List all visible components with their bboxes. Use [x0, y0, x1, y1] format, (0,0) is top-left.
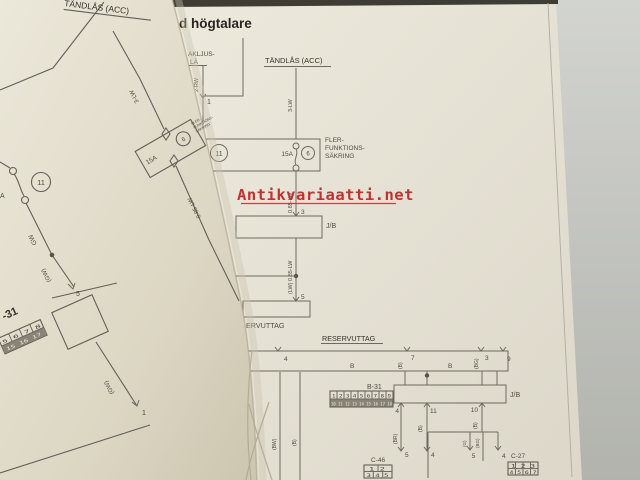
connector-c46-name: C-46 [371, 457, 385, 464]
wire-label-br: (BR) [393, 433, 399, 444]
pin-1-left: 1 [142, 410, 146, 417]
jb-pin-b: 11 [430, 408, 437, 415]
jb-pin-c: 10 [471, 407, 479, 414]
jb-lower-label: J/B [510, 392, 520, 399]
slot-number-left: 11 [37, 178, 45, 187]
c27-pin-4: 4 [502, 453, 506, 460]
ignition-wire-label: 3-LW [288, 98, 294, 112]
bus-wire-label-bg: (BG) [474, 358, 480, 369]
wire-label-b1: (B) [418, 425, 424, 432]
bus-pin-4: 4 [284, 356, 288, 363]
bus-wire-b1: B [350, 363, 354, 370]
c46-row2-numbers: 3 4 5 [367, 473, 390, 478]
watermark: Antikvariaatti.net [237, 186, 414, 204]
reserve-title: RESERVUTTAG [322, 334, 376, 343]
fuse-amp: 15A [281, 151, 293, 158]
junction-dot [425, 373, 429, 377]
b31-row2-numbers: 10 11 12 13 14 15 16 17 18 [331, 402, 392, 408]
c27-pin-5: 5 [472, 453, 476, 460]
c46-row1-numbers: 1 2 [369, 467, 386, 472]
watermark-text: Antikvariaatti.net [237, 186, 414, 204]
jb-pin-a: 4 [395, 408, 399, 415]
jb-pin-out: 5 [301, 294, 305, 301]
wire-label-b2: (B) [473, 422, 479, 429]
fuse-label-3: SÄKRING [325, 152, 354, 160]
bus-wire-label-b: (B) [398, 362, 404, 369]
c46-pin-5: 5 [405, 452, 409, 459]
wire-label-b3: (B) [292, 439, 298, 446]
photo-stage: d högtalare AKLJUS- LÄ 1 2-RW TÄNDLÅS (A… [0, 0, 640, 480]
bus-pin-7: 7 [411, 355, 415, 362]
junction-dot [50, 253, 55, 258]
bus-wire-b2: B [448, 363, 452, 370]
ignition-title: TÄNDLÅS (ACC) [265, 56, 323, 65]
jb-wire-out-label: (LW) 0.85-LW [288, 260, 294, 294]
wire-label-g: (G) [462, 440, 467, 447]
amp-partial-left: A [0, 193, 5, 200]
bus-pin-9: 9 [507, 356, 511, 363]
fuse-label-1: FLER- [325, 137, 344, 144]
bus-pin-3: 3 [485, 355, 489, 362]
c27-row2-numbers: 4 5 6 7 [510, 470, 538, 475]
wire-label-bg: (BG) [475, 438, 480, 448]
connector-b31-name: B-31 [367, 384, 382, 391]
b31-row1-numbers: 1 2 3 4 5 6 7 8 9 [332, 394, 391, 400]
wire-label-bw: (BW) [272, 438, 278, 450]
jb-pin-in: 3 [301, 209, 305, 216]
section-heading: d högtalare [179, 16, 252, 31]
wiring-diagram-photo: d högtalare AKLJUS- LÄ 1 2-RW TÄNDLÅS (A… [0, 0, 640, 480]
jb-upper-label: J/B [326, 223, 336, 230]
connector-c27-name: C-27 [511, 453, 525, 460]
c27-row1-numbers: 1 2 3 [511, 464, 536, 469]
c46-pin-4: 4 [431, 452, 435, 459]
fuse-label-2: FUNKTIONS- [325, 145, 365, 152]
